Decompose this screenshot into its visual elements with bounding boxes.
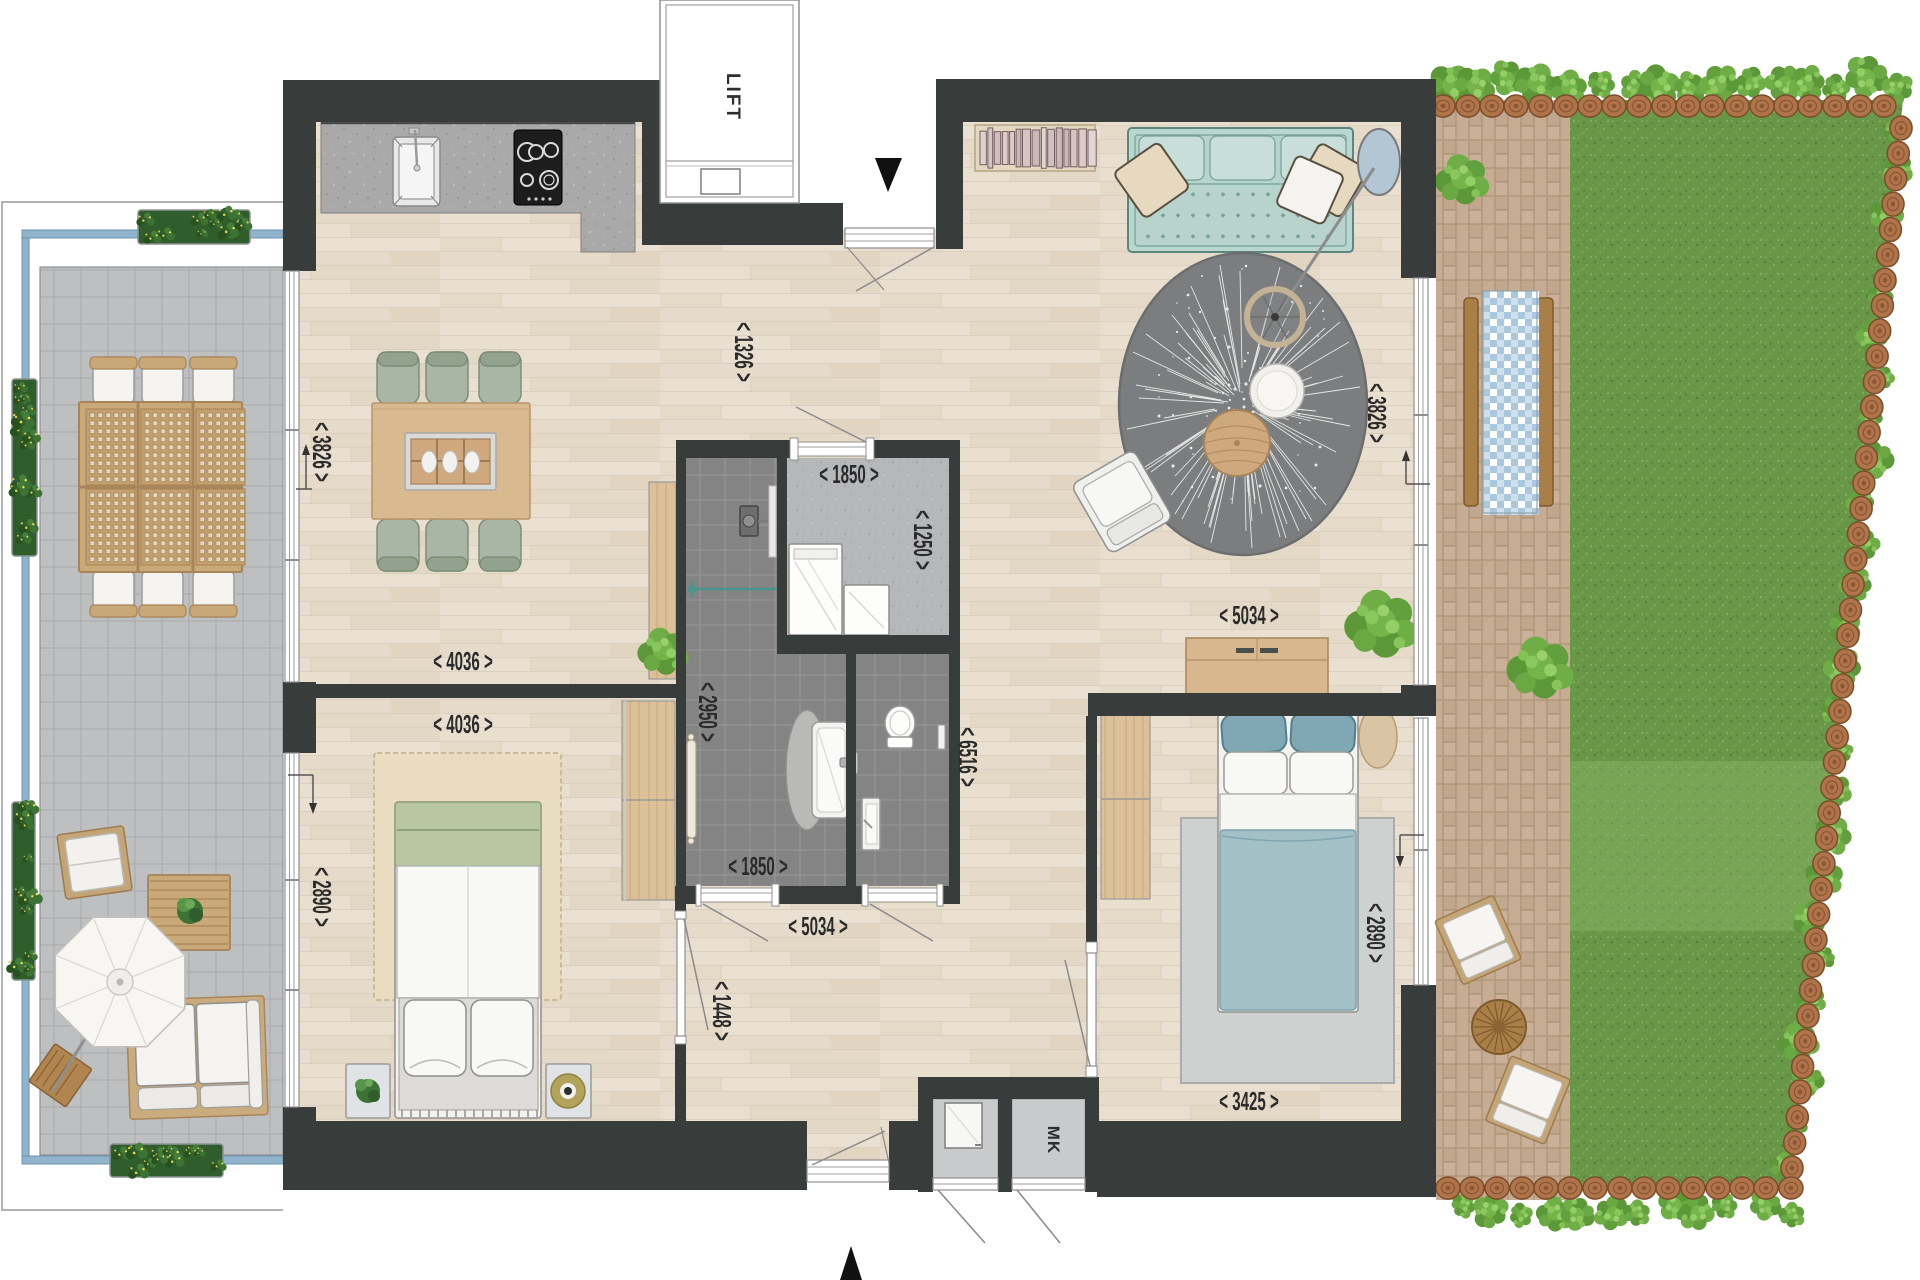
svg-text:< 1850 >: < 1850 >	[819, 460, 879, 489]
svg-text:< 2890 >: < 2890 >	[307, 867, 336, 927]
svg-text:< 3826 >: < 3826 >	[1362, 383, 1391, 443]
svg-text:< 6516 >: < 6516 >	[953, 727, 982, 787]
svg-text:< 3425 >: < 3425 >	[1219, 1087, 1279, 1116]
svg-text:< 3826 >: < 3826 >	[307, 422, 336, 482]
svg-text:< 4036 >: < 4036 >	[433, 647, 493, 676]
svg-text:< 1250 >: < 1250 >	[908, 510, 937, 570]
svg-text:< 1326 >: < 1326 >	[729, 322, 758, 382]
svg-text:< 1448 >: < 1448 >	[707, 981, 736, 1041]
svg-text:< 5034 >: < 5034 >	[1219, 601, 1279, 630]
svg-text:< 4036 >: < 4036 >	[433, 710, 493, 739]
svg-text:< 1850 >: < 1850 >	[728, 852, 788, 881]
svg-text:LIFT: LIFT	[722, 73, 743, 121]
svg-text:< 2890 >: < 2890 >	[1361, 903, 1390, 963]
svg-text:< 5034 >: < 5034 >	[788, 912, 848, 941]
svg-text:< 2950 >: < 2950 >	[693, 682, 722, 742]
svg-text:MK: MK	[1044, 1126, 1063, 1154]
